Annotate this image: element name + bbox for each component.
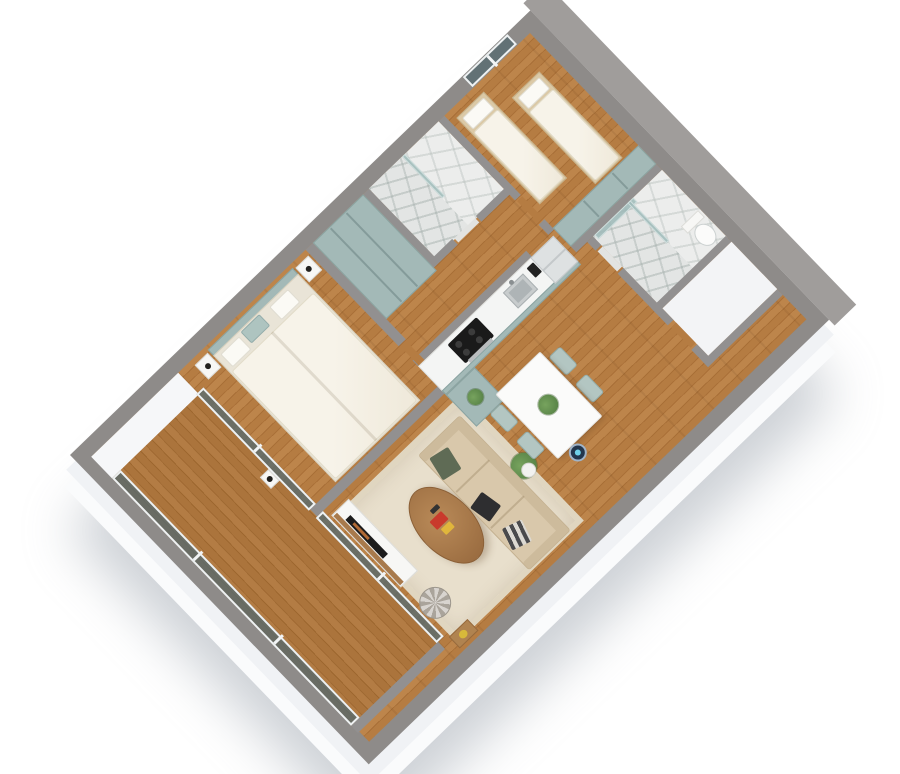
floorplan-stage bbox=[0, 0, 900, 774]
rotated-world bbox=[70, 10, 829, 764]
apartment-plan bbox=[70, 10, 829, 764]
